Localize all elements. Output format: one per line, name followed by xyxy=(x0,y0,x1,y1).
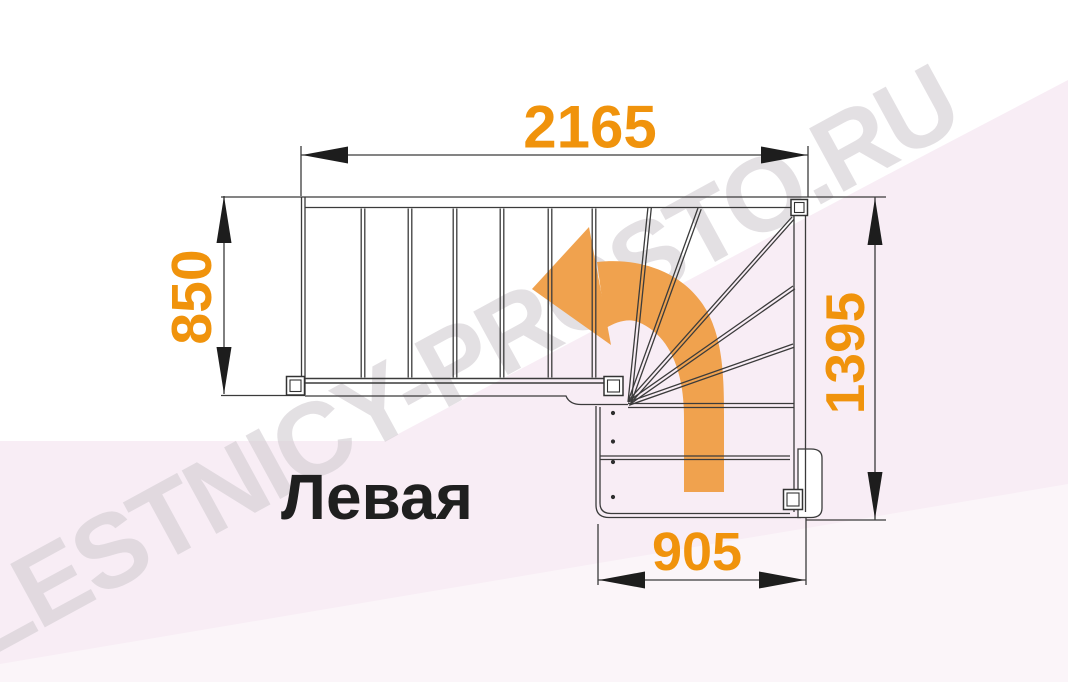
post-inner-corner-inner xyxy=(608,380,620,392)
staircase-plan-canvas: LESTNICY-PROSTO.RU xyxy=(0,0,1068,682)
dimension-bottom-label: 905 xyxy=(652,522,742,582)
post-bottom-right-inner xyxy=(787,493,799,506)
dimension-top-label: 2165 xyxy=(523,94,656,161)
dimension-left-label: 850 xyxy=(160,249,224,344)
dimension-right-label: 1395 xyxy=(814,292,876,414)
orientation-label: Левая xyxy=(281,461,473,533)
staircase-plan-drawing: LESTNICY-PROSTO.RU xyxy=(0,0,1068,682)
post-top-right-inner xyxy=(795,203,805,213)
post-bottom-left-inner xyxy=(290,380,301,392)
